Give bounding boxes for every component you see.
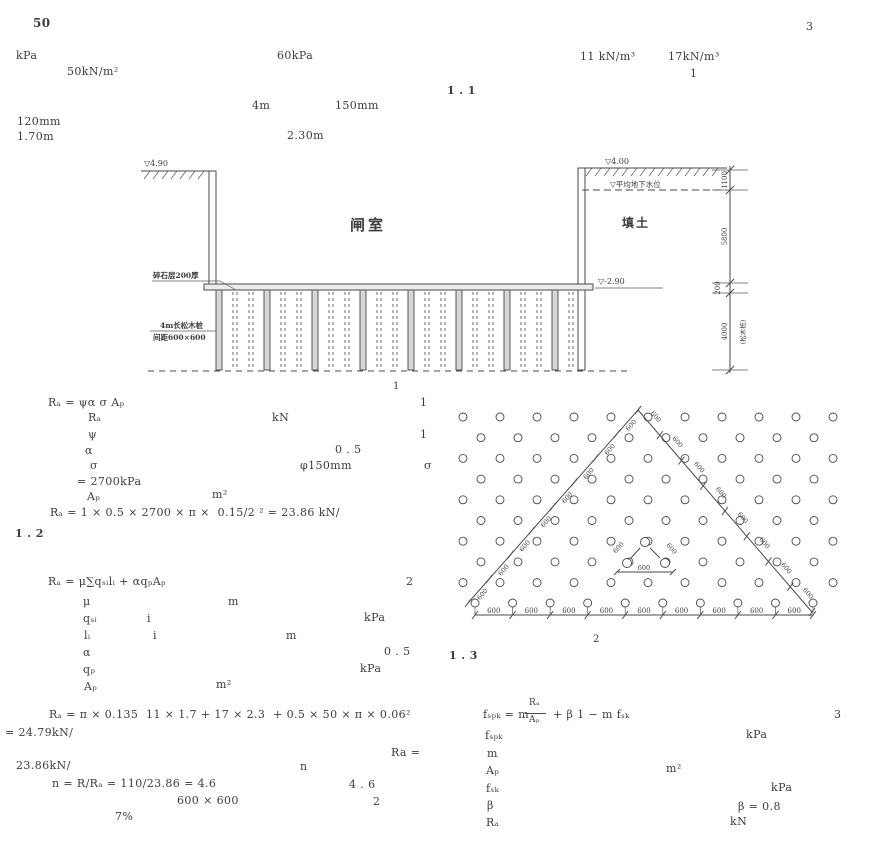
sol-run: σ — [424, 460, 432, 472]
sol-run: Aₚ — [87, 491, 100, 503]
chamber-label: 闸室 — [350, 216, 386, 234]
dimension-label: 5800 — [721, 228, 729, 246]
bottom-spacing-label: 600 — [600, 607, 613, 615]
bottom-spacing-label: 600 — [525, 607, 538, 615]
section-1-1: 1 . 1 — [447, 85, 476, 97]
sol-run: kPa — [360, 663, 381, 675]
problem-run: 60kPa — [277, 50, 313, 62]
elevation-bottom: ▽-2.90 — [598, 277, 625, 286]
diagonal-spacing-label: 600 — [757, 536, 771, 551]
elevation-right: ▽4.00 — [605, 157, 629, 166]
sol-run: = 2700kPa — [77, 476, 141, 488]
diagonal-spacing-label: 600 — [649, 409, 663, 424]
diagonal-spacing-label: 600 — [539, 515, 553, 530]
sol-run: 0 . 5 — [335, 444, 362, 456]
sol-run: 7% — [115, 811, 133, 823]
pile-label-1: 4m长松木桩 — [160, 320, 204, 330]
sol-run: Rₐ — [88, 412, 101, 424]
cushion-label: 碎石层200厚 — [153, 270, 199, 280]
fill-label: 填土 — [622, 215, 650, 230]
eq3-frac-num: Rₐ — [529, 699, 540, 708]
diagonal-spacing-label: 600 — [624, 418, 638, 433]
detail-spacing-label: 600 — [664, 541, 678, 556]
problem-run: 120mm — [17, 116, 61, 128]
bottom-spacing-label: 600 — [562, 607, 575, 615]
section-1-2: 1 . 2 — [15, 528, 44, 540]
sol-run: kPa — [364, 612, 385, 624]
sol-run: kPa — [746, 729, 767, 741]
chapter-number: 3 — [806, 21, 813, 33]
sol-run: m — [487, 748, 498, 760]
sol-run: μ — [83, 596, 91, 608]
sol-run: α — [85, 445, 93, 457]
problem-run: 2.30m — [287, 130, 324, 142]
sol-run: kPa — [771, 782, 792, 794]
sol-run: qₛᵢ — [83, 613, 97, 625]
calc-2b: = 24.79kN/ — [5, 727, 73, 739]
problem-run: kPa — [16, 50, 37, 62]
eq2: Rₐ = μ∑qₛᵢlᵢ + αqₚAₚ — [48, 576, 166, 588]
sol-run: Aₚ — [486, 765, 499, 777]
eq3-suffix: + β 1 − m fₛₖ — [553, 709, 630, 721]
sol-run: lᵢ — [84, 630, 91, 642]
pile-circle-grid — [459, 413, 837, 587]
diagonal-spacing-label: 600 — [779, 561, 793, 576]
eq3-number: 3 — [834, 709, 841, 721]
diagonal-spacing-label: 600 — [714, 485, 728, 500]
problem-run: 1.70m — [17, 131, 54, 143]
detail-spacing-label: 600 — [638, 564, 650, 572]
sol-run: β — [487, 800, 494, 812]
problem-run: 50kN/m² — [67, 66, 119, 78]
eq3-prefix: fₛₚₖ = m — [483, 709, 529, 721]
pile-label-2: 间距600×600 — [153, 332, 206, 342]
dimension-label: 200 — [714, 281, 722, 294]
eq2-number: 2 — [406, 576, 413, 588]
sol-run: ψ — [88, 429, 97, 441]
bottom-spacing-label: 600 — [712, 607, 725, 615]
bottom-dimension-chain: 600600600600600600600600600 — [471, 599, 817, 619]
water-level-label: ▽平均地下水位 — [610, 179, 661, 189]
figure2-caption: 2 — [593, 634, 599, 645]
bottom-spacing-label: 600 — [487, 607, 500, 615]
diagonal-spacing-label: 600 — [670, 435, 684, 450]
figure1-cross-section: ▽4.90 闸室 ▽4.00 ▽平均地下水位 填土 ▽-2.90 碎石层200厚… — [0, 148, 870, 400]
sol-run: α — [83, 647, 91, 659]
dimension-label: 4000 — [721, 323, 729, 341]
sol-run: Rₐ — [486, 817, 499, 829]
sol-run: m² — [666, 763, 682, 775]
figure1-caption: 1 — [393, 381, 399, 392]
sol-run: 0 . 5 — [384, 646, 411, 658]
sol-run: 600 × 600 — [177, 795, 239, 807]
calc-1: Rₐ = 1 × 0.5 × 2700 × π × 0.15/2 ² = 23.… — [50, 507, 340, 519]
diagonal-spacing-label: 600 — [603, 442, 617, 457]
sol-run: kN — [272, 412, 289, 424]
problem-run: 4m — [252, 100, 270, 112]
sol-run: n — [300, 761, 308, 773]
problem-run: 11 kN/m³ — [580, 51, 636, 63]
elevation-left: ▽4.90 — [144, 159, 168, 168]
sol-run: φ150mm — [300, 460, 352, 472]
sol-run: m — [228, 596, 239, 608]
sol-run: σ — [90, 460, 98, 472]
calc-2a: Rₐ = π × 0.135 11 × 1.7 + 17 × 2.3 + 0.5… — [49, 709, 411, 721]
sol-run: kN — [730, 816, 747, 828]
problem-run: 1 — [690, 68, 697, 80]
sol-run: Ra = — [391, 747, 420, 759]
eq3-frac-den: Aₚ — [529, 716, 540, 725]
page-number: 50 — [33, 17, 51, 30]
sol-run: qₚ — [83, 664, 95, 676]
sol-run: fₛₚₖ — [485, 730, 503, 742]
bottom-spacing-label: 600 — [750, 607, 763, 615]
sol-run: m² — [212, 489, 228, 501]
sol-run: 4 . 6 — [349, 779, 376, 791]
sol-run: 1 — [420, 429, 427, 441]
sol-run: 23.86kN/ — [16, 760, 71, 772]
sol-run: Aₚ — [84, 681, 97, 693]
sol-run: m — [286, 630, 297, 642]
sol-run: m² — [216, 679, 232, 691]
sol-run: β = 0.8 — [738, 801, 781, 813]
dimension-note: (松木桩) — [738, 319, 747, 344]
bottom-spacing-label: 600 — [788, 607, 801, 615]
problem-run: 17kN/m³ — [668, 51, 720, 63]
spacing-detail-triangle: 600600600 — [611, 538, 678, 576]
base-slab — [204, 284, 593, 290]
sol-run: i — [153, 630, 157, 642]
dimension-label: 1100 — [721, 171, 729, 189]
problem-run: 150mm — [335, 100, 379, 112]
diagonal-spacing-label: 600 — [497, 563, 511, 578]
section-1-3: 1 . 3 — [449, 650, 478, 662]
eq3-fraction-bar — [525, 713, 546, 714]
pile-group — [216, 290, 573, 370]
sol-run: i — [147, 613, 151, 625]
ground-hatch-right — [586, 168, 718, 176]
diagonal-spacing-label: 600 — [518, 539, 532, 554]
sol-run: 2 — [373, 796, 380, 808]
sol-run: fₛₖ — [486, 783, 499, 795]
bottom-spacing-label: 600 — [637, 607, 650, 615]
bottom-spacing-label: 600 — [675, 607, 688, 615]
figure2-pile-plan: 6006006006006006006006006006006006006006… — [440, 398, 870, 648]
diagonal-spacing-label: 600 — [692, 460, 706, 475]
calc-2c: n = R/Rₐ = 110/23.86 = 4.6 — [52, 778, 216, 790]
scanned-textbook-page: 503kPa60kPa11 kN/m³17kN/m³50kN/m²11 . 14… — [0, 0, 870, 842]
ground-hatch-left — [144, 171, 204, 179]
